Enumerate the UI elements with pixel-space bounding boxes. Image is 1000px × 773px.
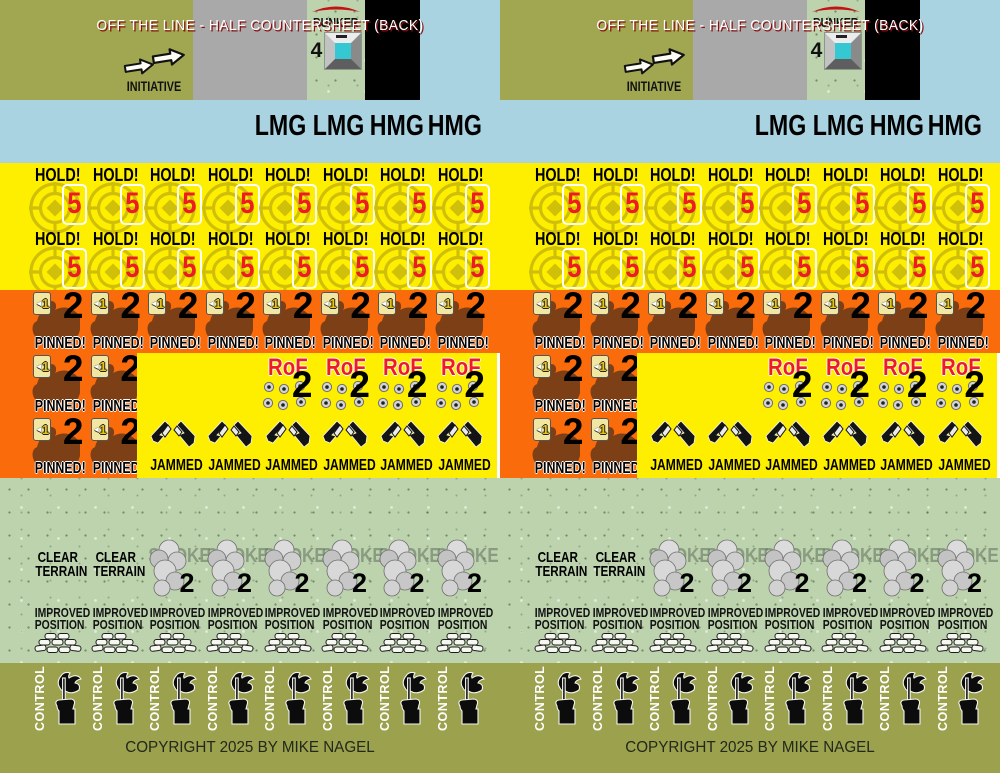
control-counter: CONTROL [817, 668, 875, 735]
sandbag-icon [820, 632, 870, 656]
modifier-value: 1 [42, 296, 49, 311]
jammed-counter: JAMMED [817, 415, 875, 478]
hold-value-box: 5 [120, 248, 145, 289]
hold-value-box: 5 [562, 248, 587, 289]
hold-label: HOLD! [937, 229, 983, 250]
modifier-value: 1 [157, 296, 164, 311]
hold-value-box: 5 [735, 184, 760, 225]
broken-gun-icon [820, 418, 870, 450]
yellow-panel: RoF 2 RoF [137, 353, 500, 478]
hold-value: 5 [740, 186, 754, 222]
bunker-value: 4 [311, 39, 323, 63]
hold-counter: HOLD! 5 [29, 163, 87, 227]
improved-position-counter: IMPROVED POSITION [259, 602, 317, 660]
hold-value-box: 5 [792, 248, 817, 289]
bunker-icon [325, 33, 361, 69]
modifier-value: 1 [444, 296, 451, 311]
hold-value-box: 5 [62, 184, 87, 225]
flag-in-fist-icon [780, 670, 812, 728]
pinned-value: 2 [908, 288, 929, 323]
hold-value: 5 [567, 186, 581, 222]
clear-terrain-counter: CLEAR TERRAIN [587, 538, 645, 602]
hold-label: HOLD! [150, 165, 196, 186]
countersheet-half: BUNKER 4 OFF THE LINE - HALF COUNTERSHEE… [500, 0, 1000, 773]
improved-position-counter: IMPROVED POSITION [374, 602, 432, 660]
modifier-value: 1 [42, 422, 49, 437]
hold-label: HOLD! [150, 229, 196, 250]
broken-gun-icon [705, 418, 755, 450]
hold-value: 5 [297, 186, 311, 222]
control-counter: CONTROL [932, 668, 990, 735]
pinned-label: PINNED! [92, 460, 138, 478]
pinned-value: 2 [63, 414, 84, 449]
hold-value: 5 [740, 250, 754, 286]
control-label: CONTROL [33, 671, 47, 731]
smoke-counter: SMOKE 2 [817, 538, 875, 602]
control-counter: CONTROL [702, 668, 760, 735]
improved-position-label: IMPROVED POSITION [207, 607, 253, 632]
pinned-label: PINNED! [265, 335, 311, 353]
control-counters: CONTROL CONTROL [529, 668, 989, 735]
improved-position-label: IMPROVED POSITION [765, 607, 811, 632]
pinned-label: PINNED! [150, 335, 196, 353]
control-counter: CONTROL [587, 668, 645, 735]
jammed-label: JAMMED [765, 457, 810, 475]
pinned-counters-side: ◄ 1 2 PINNED! ◄ 1 2 PINNED! [529, 353, 644, 478]
modifier-tag: ◄ 1 [591, 292, 609, 315]
smoke-value: 2 [237, 568, 252, 599]
modifier-value: 1 [772, 296, 779, 311]
flag-in-fist-icon [50, 670, 82, 728]
copyright: COPYRIGHT 2025 BY MIKE NAGEL [13, 739, 488, 757]
hold-counter: HOLD! 5 [432, 163, 490, 227]
hold-band: HOLD! 5 HOLD! 5 [500, 163, 1000, 290]
hold-value: 5 [970, 250, 984, 286]
control-counter: CONTROL [874, 668, 932, 735]
hold-counter: HOLD! 5 [317, 163, 375, 227]
jammed-label: JAMMED [938, 457, 983, 475]
smoke-value: 2 [737, 568, 752, 599]
improved-position-label: IMPROVED POSITION [265, 607, 311, 632]
sandbag-icon [320, 632, 370, 656]
pinned-counter: ◄ 1 2 PINNED! [817, 290, 875, 353]
control-label: CONTROL [148, 671, 162, 731]
hold-counter: HOLD! 5 [759, 227, 817, 291]
pinned-counter: ◄ 1 2 PINNED! [587, 290, 645, 353]
pinned-value: 2 [793, 288, 814, 323]
improved-position-counter: IMPROVED POSITION [932, 602, 990, 660]
hold-value-box: 5 [620, 248, 645, 289]
hold-counter: HOLD! 5 [144, 163, 202, 227]
hold-counter: HOLD! 5 [432, 227, 490, 291]
smoke-group: SMOKE 2 SMOKE [644, 538, 989, 602]
hold-counter: HOLD! 5 [644, 163, 702, 227]
modifier-tag: ◄ 1 [148, 292, 166, 315]
smoke-group: SMOKE 2 SMOKE [144, 538, 489, 602]
smoke-counter: SMOKE 2 [259, 538, 317, 602]
hold-counter: HOLD! 5 [202, 163, 260, 227]
hold-value: 5 [182, 250, 196, 286]
hold-value: 5 [297, 250, 311, 286]
modifier-value: 1 [99, 422, 106, 437]
hold-label: HOLD! [650, 229, 696, 250]
sandbag-icon [33, 632, 83, 656]
improved-position-counter: IMPROVED POSITION [529, 602, 587, 660]
hold-value-box: 5 [407, 184, 432, 225]
modifier-tag: ◄ 1 [821, 292, 839, 315]
hold-counter: HOLD! 5 [374, 227, 432, 291]
rof-value: 2 [292, 366, 313, 403]
sheet-title: OFF THE LINE - HALF COUNTERSHEET (BACK) [21, 17, 499, 34]
hold-counter: HOLD! 5 [29, 227, 87, 291]
bunker-counter: BUNKER 4 [807, 0, 865, 100]
jammed-label: JAMMED [708, 457, 753, 475]
sandbag-icon [533, 632, 583, 656]
hold-label: HOLD! [265, 229, 311, 250]
pinned-label: PINNED! [535, 460, 581, 478]
sandbag-icon [205, 632, 255, 656]
sandbag-icon [435, 632, 485, 656]
hold-label: HOLD! [265, 165, 311, 186]
hold-counter: HOLD! 5 [702, 163, 760, 227]
modifier-value: 1 [657, 296, 664, 311]
rof-counter: RoF 2 [759, 353, 817, 415]
flag-in-fist-icon [550, 670, 582, 728]
pinned-value: 2 [120, 288, 141, 323]
improved-position-label: IMPROVED POSITION [822, 607, 868, 632]
control-label: CONTROL [648, 671, 662, 731]
pinned-counters-side: ◄ 1 2 PINNED! ◄ 1 2 PINNED! [29, 353, 144, 478]
modifier-tag: ◄ 1 [378, 292, 396, 315]
hold-counter: HOLD! 5 [87, 163, 145, 227]
hold-label: HOLD! [707, 165, 753, 186]
sandbag-icon [90, 632, 140, 656]
improved-position-counter: IMPROVED POSITION [202, 602, 260, 660]
improved-position-label: IMPROVED POSITION [937, 607, 983, 632]
improved-position-counter: IMPROVED POSITION [874, 602, 932, 660]
terrain-counters: CLEAR TERRAIN CLEAR TERRAIN SMOKE [29, 538, 489, 602]
hold-counter: HOLD! 5 [817, 163, 875, 227]
hold-value-box: 5 [620, 184, 645, 225]
weapon-label: LMG [312, 110, 358, 143]
control-label: CONTROL [533, 671, 547, 731]
control-band: CONTROL CONTROL [0, 663, 500, 773]
pinned-counter: ◄ 1 2 PINNED! [874, 290, 932, 353]
clear-terrain-label: CLEAR TERRAIN [35, 551, 80, 580]
pinned-label: PINNED! [765, 335, 811, 353]
broken-gun-icon [320, 418, 370, 450]
hold-value-box: 5 [350, 248, 375, 289]
hold-value-box: 5 [677, 248, 702, 289]
pinned-value: 2 [350, 288, 371, 323]
hold-value-box: 5 [292, 184, 317, 225]
modifier-tag: ◄ 1 [878, 292, 896, 315]
hold-value: 5 [625, 250, 639, 286]
pinned-counters-row: ◄ 1 2 PINNED! ◄ 1 2 PINNED! [529, 290, 989, 353]
bunker-cell: BUNKER 4 [307, 0, 365, 100]
hold-label: HOLD! [35, 165, 81, 186]
pinned-counter: ◄ 1 2 PINNED! [374, 290, 432, 353]
hold-counter: HOLD! 5 [374, 163, 432, 227]
weapons-band: LMGLMGHMGHMG [0, 100, 500, 163]
hold-counter: HOLD! 5 [644, 227, 702, 291]
broken-gun-icon [378, 418, 428, 450]
control-label: CONTROL [263, 671, 277, 731]
modifier-tag: ◄ 1 [706, 292, 724, 315]
sandbag-icon [378, 632, 428, 656]
hold-value: 5 [470, 186, 484, 222]
black-panel [365, 0, 420, 100]
hold-label: HOLD! [35, 229, 81, 250]
improved-position-counter: IMPROVED POSITION [29, 602, 87, 660]
smoke-value: 2 [294, 568, 309, 599]
hold-counter: HOLD! 5 [259, 227, 317, 291]
modifier-tag: ◄ 1 [533, 418, 551, 441]
rof-counter: RoF 2 [874, 353, 932, 415]
weapons-band: LMGLMGHMGHMG [500, 100, 1000, 163]
hold-counters: HOLD! 5 HOLD! 5 [29, 163, 489, 290]
control-label: CONTROL [91, 671, 105, 731]
double-arrow-icon [621, 48, 687, 78]
flag-in-fist-icon [953, 670, 985, 728]
hold-value-box: 5 [677, 184, 702, 225]
hold-value: 5 [67, 250, 81, 286]
weapon-labels: LMGLMGHMGHMG [249, 110, 479, 143]
clear-terrain-group: CLEAR TERRAIN CLEAR TERRAIN [529, 538, 644, 602]
bunker-swoosh-icon [310, 3, 362, 14]
countersheet-half: BUNKER 4 OFF THE LINE - HALF COUNTERSHEE… [0, 0, 500, 773]
pinned-value: 2 [563, 351, 584, 386]
improved-position-label: IMPROVED POSITION [35, 607, 81, 632]
pinned-value: 2 [620, 288, 641, 323]
pinned-counter: ◄ 1 2 PINNED! [29, 290, 87, 353]
bunker-value: 4 [811, 39, 823, 63]
control-label: CONTROL [706, 671, 720, 731]
modifier-value: 1 [99, 296, 106, 311]
weapon-label: HMG [427, 110, 473, 143]
control-label: CONTROL [936, 671, 950, 731]
weapon-label: HMG [370, 110, 416, 143]
pinned-label: PINNED! [822, 335, 868, 353]
pinned-label: PINNED! [937, 335, 983, 353]
bunker-counter: BUNKER 4 [307, 0, 365, 100]
hold-counter: HOLD! 5 [932, 163, 990, 227]
modifier-tag: ◄ 1 [33, 355, 51, 378]
hold-value: 5 [855, 186, 869, 222]
pinned-counter: ◄ 1 2 PINNED! [587, 353, 645, 416]
rof-value: 2 [792, 366, 813, 403]
hold-value: 5 [625, 186, 639, 222]
modifier-tag: ◄ 1 [321, 292, 339, 315]
top-band: BUNKER 4 OFF THE LINE - HALF COUNTERSHEE… [0, 0, 500, 100]
hold-counter: HOLD! 5 [874, 163, 932, 227]
clear-terrain-label: CLEAR TERRAIN [535, 551, 580, 580]
modifier-value: 1 [542, 359, 549, 374]
control-counter: CONTROL [759, 668, 817, 735]
pinned-label: PINNED! [35, 460, 81, 478]
improved-position-counter: IMPROVED POSITION [317, 602, 375, 660]
pinned-counter: ◄ 1 2 PINNED! [29, 416, 87, 479]
pinned-value: 2 [465, 288, 486, 323]
jammed-counter: JAMMED [874, 415, 932, 478]
hold-value-box: 5 [177, 184, 202, 225]
sandbag-icon [590, 632, 640, 656]
pinned-value: 2 [235, 288, 256, 323]
hold-label: HOLD! [380, 165, 426, 186]
smoke-counter: SMOKE 2 [317, 538, 375, 602]
improved-position-label: IMPROVED POSITION [592, 607, 638, 632]
pinned-counter: ◄ 1 2 PINNED! [644, 290, 702, 353]
hold-value-box: 5 [735, 248, 760, 289]
smoke-value: 2 [409, 568, 424, 599]
sheet-title: OFF THE LINE - HALF COUNTERSHEET (BACK) [521, 17, 999, 34]
hold-value-box: 5 [292, 248, 317, 289]
rof-value: 2 [849, 366, 870, 403]
hold-value: 5 [355, 186, 369, 222]
hold-value-box: 5 [965, 248, 990, 289]
hold-counter: HOLD! 5 [932, 227, 990, 291]
hold-label: HOLD! [322, 165, 368, 186]
flag-in-fist-icon [453, 670, 485, 728]
hold-counter: HOLD! 5 [202, 227, 260, 291]
bunker-icon [825, 33, 861, 69]
hold-value: 5 [797, 186, 811, 222]
improved-position-label: IMPROVED POSITION [150, 607, 196, 632]
flag-in-fist-icon [165, 670, 197, 728]
pinned-counter: ◄ 1 2 PINNED! [259, 290, 317, 353]
jammed-counter: JAMMED [144, 415, 202, 478]
improved-position-label: IMPROVED POSITION [707, 607, 753, 632]
rof-value: 2 [464, 366, 485, 403]
flag-in-fist-icon [338, 670, 370, 728]
modifier-value: 1 [272, 296, 279, 311]
control-counter: CONTROL [529, 668, 587, 735]
pinned-counter: ◄ 1 2 PINNED! [317, 290, 375, 353]
improved-position-counter: IMPROVED POSITION [817, 602, 875, 660]
pinned-value: 2 [178, 288, 199, 323]
modifier-value: 1 [599, 296, 606, 311]
hold-label: HOLD! [822, 229, 868, 250]
rof-counters: RoF 2 RoF [759, 353, 989, 415]
pinned-label: PINNED! [322, 335, 368, 353]
hold-value: 5 [912, 250, 926, 286]
modifier-tag: ◄ 1 [648, 292, 666, 315]
control-counter: CONTROL [374, 668, 432, 735]
bunker-cell: BUNKER 4 [807, 0, 865, 100]
broken-gun-icon [263, 418, 313, 450]
jammed-label: JAMMED [150, 457, 195, 475]
hold-counter: HOLD! 5 [759, 163, 817, 227]
jammed-counter: JAMMED [432, 415, 490, 478]
jammed-counter: JAMMED [202, 415, 260, 478]
weapon-label: HMG [870, 110, 916, 143]
hold-counter: HOLD! 5 [317, 227, 375, 291]
gray-panel [193, 0, 307, 100]
pinned-counters-row: ◄ 1 2 PINNED! ◄ 1 2 PINNED! [29, 290, 489, 353]
bunker-swoosh-icon [810, 3, 862, 14]
rof-value: 2 [407, 366, 428, 403]
hold-label: HOLD! [535, 165, 581, 186]
rof-counter: RoF 2 [817, 353, 875, 415]
sandbag-icon [263, 632, 313, 656]
broken-gun-icon [935, 418, 985, 450]
control-counters: CONTROL CONTROL [29, 668, 489, 735]
modifier-value: 1 [542, 422, 549, 437]
clear-terrain-label: CLEAR TERRAIN [93, 551, 138, 580]
control-label: CONTROL [436, 671, 450, 731]
pinned-counter: ◄ 1 2 PINNED! [87, 353, 145, 416]
pinned-value: 2 [678, 288, 699, 323]
improved-position-label: IMPROVED POSITION [650, 607, 696, 632]
modifier-value: 1 [599, 359, 606, 374]
rof-counter: RoF 2 [317, 353, 375, 415]
flag-in-fist-icon [395, 670, 427, 728]
pinned-label: PINNED! [650, 335, 696, 353]
hold-value-box: 5 [965, 184, 990, 225]
control-label: CONTROL [821, 671, 835, 731]
pinned-counter: ◄ 1 2 PINNED! [29, 353, 87, 416]
pinned-counter: ◄ 1 2 PINNED! [587, 416, 645, 479]
hold-counter: HOLD! 5 [529, 227, 587, 291]
hold-value-box: 5 [407, 248, 432, 289]
hold-label: HOLD! [437, 229, 483, 250]
smoke-counter: SMOKE 2 [644, 538, 702, 602]
improved-position-counter: IMPROVED POSITION [644, 602, 702, 660]
modifier-tag: ◄ 1 [936, 292, 954, 315]
pinned-label: PINNED! [707, 335, 753, 353]
hold-counter: HOLD! 5 [87, 227, 145, 291]
pinned-counter: ◄ 1 2 PINNED! [87, 416, 145, 479]
hold-label: HOLD! [937, 165, 983, 186]
modifier-tag: ◄ 1 [436, 292, 454, 315]
flag-in-fist-icon [223, 670, 255, 728]
hold-value: 5 [912, 186, 926, 222]
rof-value: 2 [349, 366, 370, 403]
sandbag-icon [935, 632, 985, 656]
jammed-counters: JAMMED JAMMED [644, 415, 989, 478]
modifier-tag: ◄ 1 [91, 418, 109, 441]
yellow-panel: RoF 2 RoF [637, 353, 1000, 478]
jammed-counter: JAMMED [259, 415, 317, 478]
sandbag-icon [763, 632, 813, 656]
pinned-counter: ◄ 1 2 PINNED! [529, 290, 587, 353]
weapon-labels: LMGLMGHMGHMG [749, 110, 979, 143]
pinned-value: 2 [735, 288, 756, 323]
broken-gun-icon [763, 418, 813, 450]
smoke-value: 2 [794, 568, 809, 599]
rof-value: 2 [907, 366, 928, 403]
pinned-label: PINNED! [207, 335, 253, 353]
pinned-band: ◄ 1 2 PINNED! ◄ 1 2 PINNED! [0, 290, 500, 478]
rof-counter: RoF 2 [932, 353, 990, 415]
modifier-value: 1 [829, 296, 836, 311]
hold-value-box: 5 [120, 184, 145, 225]
pinned-label: PINNED! [437, 335, 483, 353]
sandbag-icon [148, 632, 198, 656]
control-counter: CONTROL [259, 668, 317, 735]
modifier-tag: ◄ 1 [591, 418, 609, 441]
pinned-value: 2 [63, 288, 84, 323]
hold-value-box: 5 [350, 184, 375, 225]
hold-value: 5 [567, 250, 581, 286]
modifier-value: 1 [714, 296, 721, 311]
broken-gun-icon [148, 418, 198, 450]
hold-value-box: 5 [465, 248, 490, 289]
flag-in-fist-icon [838, 670, 870, 728]
pinned-band: ◄ 1 2 PINNED! ◄ 1 2 PINNED! [500, 290, 1000, 478]
terrain-band: CLEAR TERRAIN CLEAR TERRAIN SMOKE [0, 478, 500, 663]
hold-value: 5 [67, 186, 81, 222]
